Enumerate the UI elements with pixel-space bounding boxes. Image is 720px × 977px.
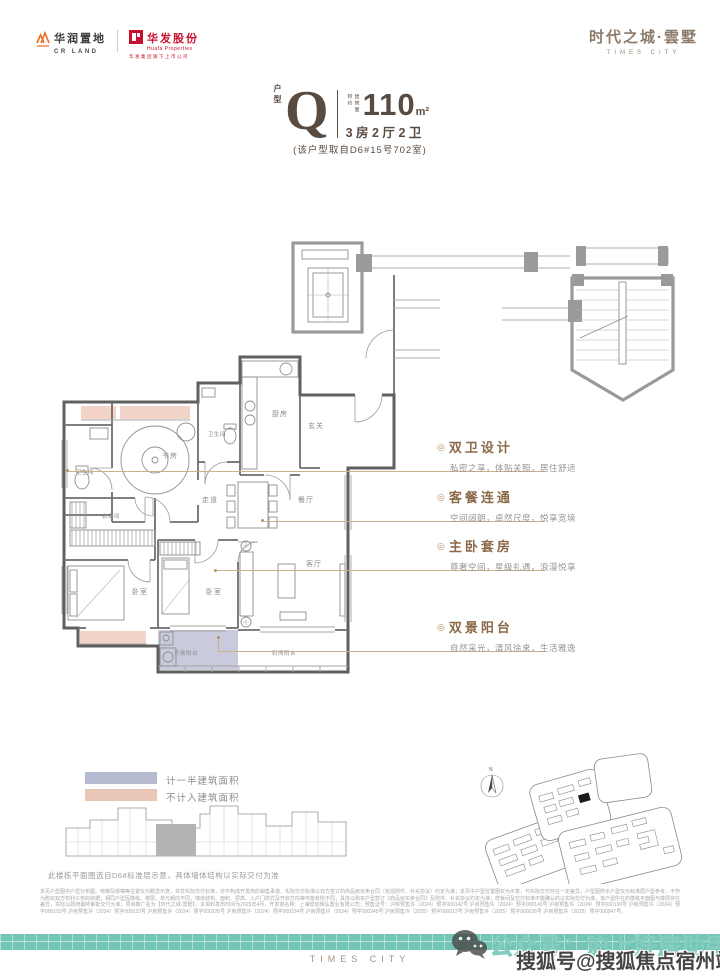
room-hallway: 走道 [202, 495, 218, 504]
wechat-icon [450, 928, 488, 960]
unit-area-unit: m² [416, 106, 429, 118]
leader-stem-4 [218, 639, 219, 651]
room-study: 书房 [162, 451, 178, 460]
project-logo: 时代之城·雲墅 TIMES CITY [589, 26, 698, 56]
feature-bullet-icon: ◎ [437, 492, 445, 502]
feature-4: ◎双景阳台 自然采光，清风徐来，生活雅逸 [437, 617, 607, 654]
crland-name: 华润置地 [54, 30, 106, 46]
sohu-watermark: 搜狐号@搜狐焦点宿州站 [516, 945, 720, 974]
disclaimer-text: 本页户型图中户型分布图、电梯及楼梯等位置仅为概念示意，并非实际交付标准，亦不构成… [40, 889, 680, 915]
compass-icon: N [481, 767, 503, 797]
feature-desc: 空间阔朗，卓然尺度，悦享宽境 [437, 512, 607, 524]
legend-swatch-half-area [85, 772, 157, 784]
room-open-balcony: 开敞阳台 [174, 649, 198, 657]
room-dining: 餐厅 [298, 495, 314, 504]
room-bedroom-2: 卧室 [206, 587, 222, 596]
feature-bullet-icon: ◎ [437, 541, 445, 551]
unit-title-block: 户型 Q 建筑面积约 110 m² 3房2厅2卫 [272, 84, 429, 141]
mountain-icon [36, 30, 51, 47]
room-bath-2: 卫生间 [208, 430, 226, 438]
crland-logo: 华润置地 CR LAND [36, 30, 106, 55]
unit-layout: 3房2厅2卫 [346, 122, 429, 141]
bay-window-pink-1 [81, 406, 116, 419]
feature-title: 双卫设计 [449, 440, 513, 455]
huafa-icon [129, 30, 143, 44]
room-bath-1: 卫生间 [76, 468, 94, 476]
feature-bullet-icon: ◎ [437, 622, 445, 632]
huafa-name-en: Huafa Properties [147, 46, 199, 52]
entry-lobby [366, 275, 440, 395]
unit-area-prefix: 建筑面积约 [346, 94, 360, 118]
unit-area-value: 110 [363, 92, 416, 118]
site-parcel-3 [593, 753, 653, 804]
feature-title: 客餐连通 [449, 490, 513, 505]
huafa-tagline: 华发集团旗下上市公司 [129, 54, 199, 60]
stairwell [572, 246, 673, 400]
unit-type-letter: Q [285, 86, 329, 136]
room-master-bedroom: 卧室 [132, 587, 148, 596]
feature-bullet-icon: ◎ [437, 442, 445, 452]
room-living: 客厅 [306, 559, 322, 568]
bay-window-pink-3 [80, 631, 146, 644]
header-logos: 华润置地 CR LAND 华发股份 Huafa Properties 华发集团旗… [36, 30, 199, 60]
building-note: 此楼栋平面图选自D6#标准层示意，具体墙体结构以实际交付为准 [48, 870, 279, 881]
legend-label-half-area: 计一半建筑面积 [166, 773, 240, 787]
feature-desc: 尊奢空间，星级礼遇，浪漫悦享 [437, 561, 607, 573]
corridor [356, 252, 582, 322]
huafa-logo: 华发股份 Huafa Properties 华发集团旗下上市公司 [129, 30, 199, 60]
site-plan: N [432, 746, 692, 884]
project-name-en: TIMES CITY [589, 50, 698, 56]
feature-2: ◎客餐连通 空间阔朗，卓然尺度，悦享宽境 [437, 487, 607, 524]
doors [90, 395, 382, 582]
feature-1: ◎双卫设计 私密之享，体贴关照，居住舒适 [437, 437, 607, 474]
room-entry: 玄关 [308, 421, 324, 430]
svg-text:N: N [489, 767, 493, 773]
logo-divider [117, 30, 118, 52]
title-divider [337, 90, 338, 138]
unit-source-note: (该户型取自D6#15号702室) [0, 142, 720, 156]
room-kitchen: 厨房 [272, 409, 288, 418]
open-balcony-area [158, 630, 238, 670]
feature-desc: 自然采光，清风徐来，生活雅逸 [437, 642, 607, 654]
feature-desc: 私密之享，体贴关照，居住舒适 [437, 462, 607, 474]
highlighted-unit [156, 824, 196, 856]
unit-type-label: 户型 [272, 84, 283, 106]
floorplate-drawing [60, 798, 352, 866]
feature-title: 双景阳台 [449, 620, 513, 635]
feature-3: ◎主卧套房 尊奢空间，星级礼遇，浪漫悦享 [437, 536, 607, 573]
room-closet: 衣帽间 [102, 512, 120, 520]
crland-name-en: CR LAND [54, 49, 106, 55]
floorplan-drawing: 书房 卫生间 卫生间 厨房 玄关 走道 餐厅 衣帽间 卧室 卧室 客厅 开敞阳台… [50, 230, 676, 730]
project-name: 时代之城·雲墅 [589, 26, 698, 47]
bay-window-pink-2 [120, 406, 190, 419]
flyer-page: 华润置地 CR LAND 华发股份 Huafa Properties 华发集团旗… [0, 0, 720, 977]
feature-title: 主卧套房 [449, 539, 513, 554]
huafa-name: 华发股份 [147, 30, 199, 46]
elevator-core [293, 243, 362, 332]
